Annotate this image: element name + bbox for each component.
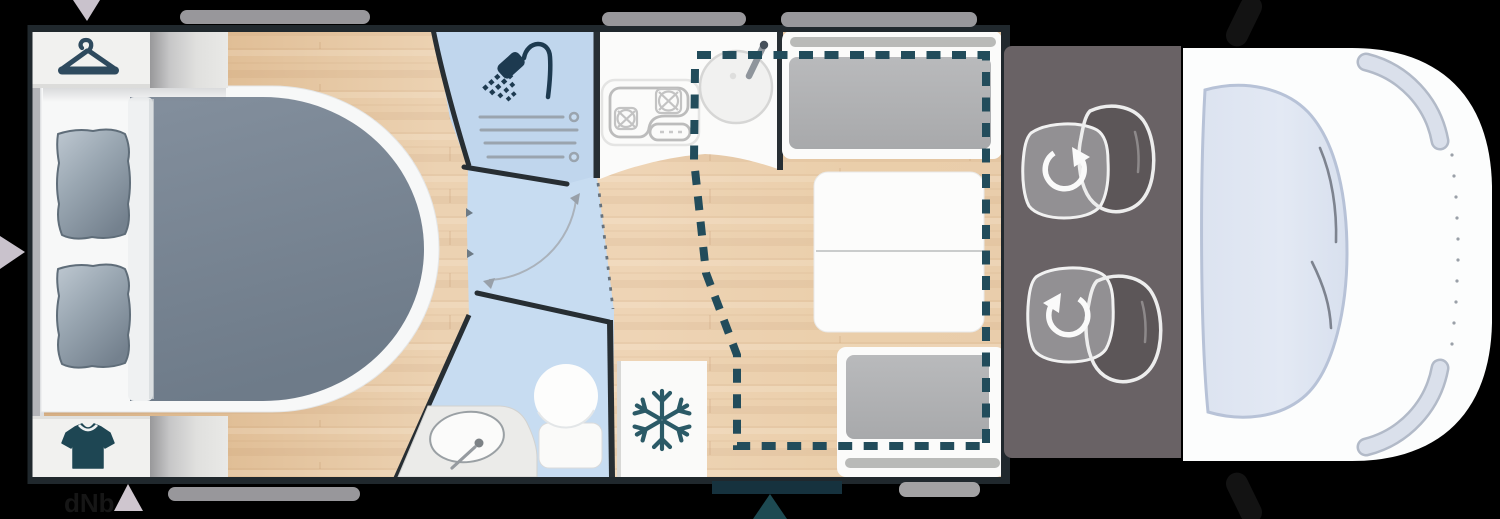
svg-text:dNb: dNb <box>64 488 115 518</box>
